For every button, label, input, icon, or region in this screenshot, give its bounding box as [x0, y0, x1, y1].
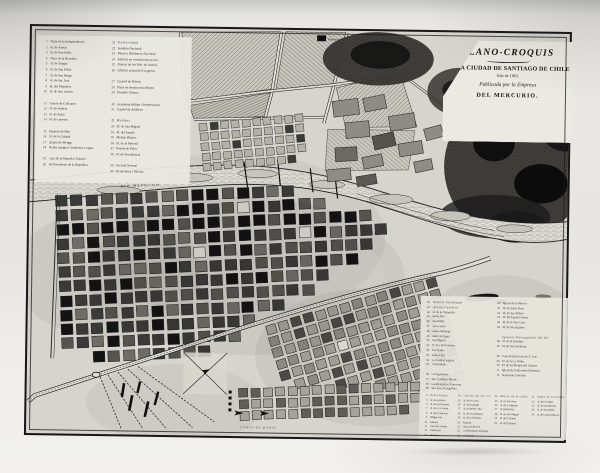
panteon-label: Panteon	[327, 37, 339, 41]
map-year: Año de 1863.	[443, 72, 572, 79]
legend-entry: 35Id. de la Providencia	[529, 413, 564, 418]
legend-entry: 13Matadero	[422, 434, 453, 439]
publisher-name: DEL MERCURIO.	[443, 92, 572, 100]
legend-br-col1: 42Palacio Arzobispal43Iglesia Catedral44…	[423, 300, 492, 392]
legend-bb-col0: 4Hotel Ingles5Id. de la Bolsa6Id. de las…	[422, 394, 454, 439]
map-print: RIO MAPOCHO Alameda de las Delicias CAMP…	[24, 24, 572, 443]
title-flourish	[486, 59, 530, 64]
legend-bottom-right-lower: 4Hotel Ingles5Id. de la Bolsa6Id. de las…	[422, 394, 565, 440]
legend-bottom-right-upper: 42Palacio Arzobispal43Iglesia Catedral44…	[423, 300, 566, 393]
legend-br-col2: 60Iglesia de la Merced61Id. de Santa Ros…	[493, 301, 566, 393]
publisher-line: Publicada por la Empresa	[443, 81, 572, 89]
legend-bb-col3: 31Baños de la Cañada32Id. del Sr. Ruiz33…	[529, 396, 565, 441]
legend-entry: 40Id. de Artes i Oficios	[106, 169, 188, 176]
legend-entry: 72Seminario Conciliar	[493, 373, 565, 379]
legend-entry: 23La Florida	[455, 434, 490, 439]
city-grid-north	[199, 114, 307, 172]
legend-bb-col1: 14Capilla del Sto. Carmen15Id. del Sr. J…	[455, 394, 491, 439]
legend-bb-col2: 24Molino de la Cañadilla25Id. de San Jos…	[492, 395, 528, 440]
campo-label: CAMPO DE MARTE	[240, 425, 276, 430]
legend-top-left-col1: 1Plaza de la Independencia2Id. de Armas3…	[39, 39, 105, 181]
panteon-marker	[317, 35, 326, 41]
campo-de-marte	[183, 352, 227, 394]
city-grid-south	[238, 382, 420, 421]
legend-top-left: 1Plaza de la Independencia2Id. de Armas3…	[35, 35, 192, 184]
legend-entry: 59San Juan Evangelista	[423, 386, 491, 392]
legend-top-left-col2: 21Universidad22Instituto Nacional23Museo…	[106, 40, 190, 182]
legend-entry: 20del Presidente de la Republica	[39, 162, 103, 169]
legend-bottom-right: 42Palacio Arzobispal43Iglesia Catedral44…	[419, 296, 568, 440]
photograph-of-map: RIO MAPOCHO Alameda de las Delicias CAMP…	[0, 0, 600, 473]
photo-smudge	[400, 447, 550, 456]
legend-entry: 30Id. del Tajamar	[492, 421, 527, 426]
